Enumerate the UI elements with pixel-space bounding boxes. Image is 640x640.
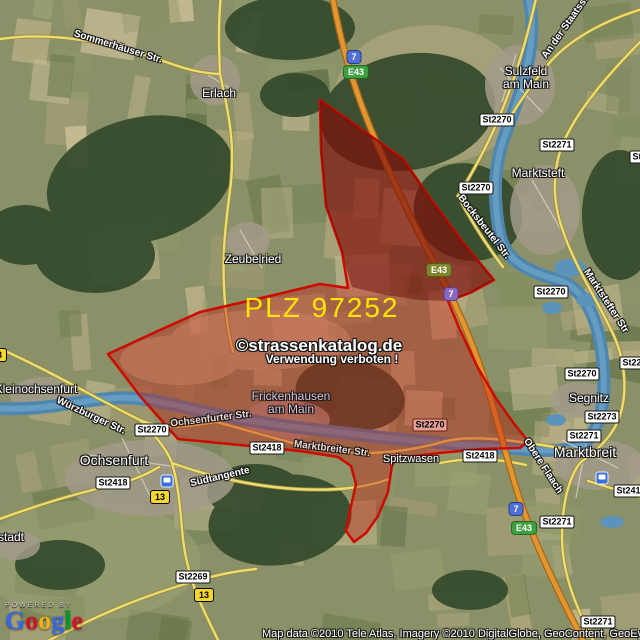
- town-label-segnitz: Segnitz: [569, 391, 609, 405]
- town-label-frickenhausen: Frickenhausen: [252, 389, 331, 403]
- road-label-an-der-staatsstr: An der Staatsstr.: [540, 0, 595, 61]
- road-badge-st2270: St2270: [564, 368, 599, 381]
- watermark-warning: Verwendung verboten !: [266, 352, 399, 366]
- road-label-w-rzburger-str: Würzburger Str.: [55, 395, 128, 437]
- map-viewport[interactable]: ErlachZeubelriedSulzfeldam MainMarktstef…: [0, 0, 640, 640]
- motorway-shield-e43: E43: [426, 263, 452, 277]
- road-badge-st2418: St2418: [613, 485, 640, 498]
- station-icon: [596, 472, 609, 485]
- road-badge-st2270: St2270: [458, 182, 493, 195]
- road-badge-st2271: St2271: [580, 616, 615, 629]
- map-attribution: Map data ©2010 Tele Atlas, Imagery ©2010…: [262, 628, 640, 640]
- road-badge-st2271: St2271: [566, 430, 601, 443]
- google-logo-text: Google: [5, 609, 83, 633]
- road-label-sommerh-user-str: Sommerhäuser Str.: [73, 28, 164, 65]
- road-badge-st2271: St2271: [539, 516, 574, 529]
- road-badge-st2270: St2270: [134, 424, 169, 437]
- bundesstrasse-shield-13: 13: [150, 490, 170, 504]
- town-label-ochsenfurt: Ochsenfurt: [80, 452, 148, 468]
- road-badge-st2418: St2418: [249, 442, 284, 455]
- motorway-shield-7: 7: [443, 287, 458, 301]
- road-badge-st2270: St2270: [479, 114, 514, 127]
- town-label-marktsteft: Marktsteft: [512, 166, 565, 180]
- motorway-shield-7: 7: [508, 502, 523, 516]
- road-badge-st2270: St2270: [412, 419, 447, 432]
- motorway-shield-e43: E43: [511, 521, 537, 535]
- road-badge-st2271: St2271: [629, 151, 640, 164]
- motorway-shield-e43: E43: [343, 65, 369, 79]
- bundesstrasse-shield-13: 13: [0, 348, 7, 362]
- road-badge-st2271: St2271: [539, 139, 574, 152]
- town-label-sulzfeld: Sulzfeld: [505, 64, 548, 78]
- road-badge-st2418: St2418: [95, 477, 130, 490]
- town-label-spitzwasen: Spitzwasen: [383, 453, 439, 465]
- road-label-bocksbeutel-str: Bocksbeutel Str.: [456, 193, 513, 262]
- road-label-ochsenfurter-str: Ochsenfurter Str.: [170, 409, 252, 430]
- road-badge-st2270: St2270: [533, 286, 568, 299]
- town-label-marktbreit: Marktbreit: [554, 444, 616, 460]
- plz-code-label: PLZ 97252: [245, 292, 400, 324]
- road-badge-st2418: St2418: [462, 450, 497, 463]
- road-badge-st2270: St2270: [619, 357, 640, 370]
- road-badge-st2273: St2273: [584, 411, 619, 424]
- road-label-marktbreiter-str: Marktbreiter Str.: [293, 439, 370, 459]
- town-label-kleinochsenfurt: Kleinochsenfurt: [0, 382, 77, 396]
- bundesstrasse-shield-13: 13: [194, 588, 214, 602]
- road-label-marktstefter-str: Marktstefter Str: [581, 267, 630, 335]
- town-label-am-main: am Main: [503, 77, 549, 91]
- road-badge-st2269: St2269: [175, 571, 210, 584]
- google-logo[interactable]: POWERED BY Google: [5, 602, 83, 633]
- motorway-shield-7: 7: [346, 50, 361, 64]
- town-label-am-main: am Main: [268, 402, 314, 416]
- station-icon: [161, 475, 174, 488]
- town-label-erlach: Erlach: [202, 86, 236, 100]
- road-label-s-dtangente: Südtangente: [189, 465, 250, 489]
- town-label-zeubelried: Zeubelried: [225, 252, 282, 266]
- town-label-stadt: stadt: [0, 530, 24, 544]
